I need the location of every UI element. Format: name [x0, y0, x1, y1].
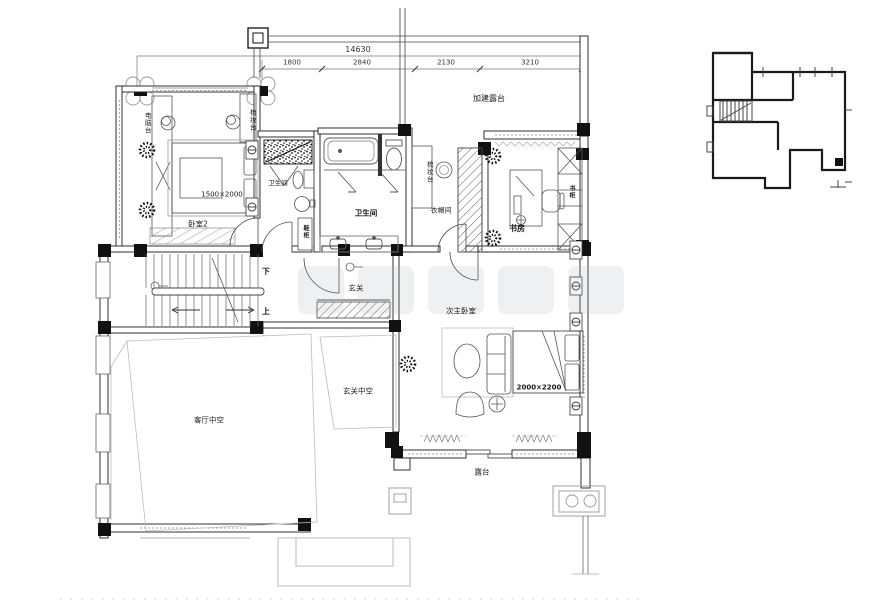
- dim-seg-1800: 1800: [283, 60, 301, 67]
- label-added-terrace: 加建露台: [473, 95, 505, 103]
- floorplan-page: 14630 1800 2840 2130 3210 加建露台 电脑台 梳妆台 1…: [0, 0, 878, 614]
- dim-total: 14630: [345, 46, 370, 54]
- label-dresser-closet: 梳妆台: [426, 161, 433, 184]
- label-study: 书房: [509, 225, 525, 233]
- label-bedroom2: 卧室2: [188, 220, 208, 228]
- label-bath-small: 卫生间: [268, 180, 288, 187]
- label-stairs-up: 上: [262, 308, 270, 316]
- label-living-void: 客厅中空: [194, 416, 224, 424]
- label-shoe-cabinet: 鞋柜: [302, 225, 308, 239]
- label-cloakroom: 衣帽间: [431, 208, 452, 215]
- label-foyer-void: 玄关中空: [343, 387, 373, 395]
- label-bath-main: 卫生间: [355, 209, 378, 217]
- label-bookcase: 书柜: [568, 185, 574, 199]
- label-terrace: 露台: [475, 468, 490, 476]
- label-second-master-bed: 2000×2200: [517, 385, 562, 392]
- dim-seg-2130: 2130: [437, 60, 455, 67]
- label-dresser-bedroom: 梳妆台: [249, 109, 256, 132]
- label-computer-desk: 电脑台: [144, 112, 151, 135]
- label-foyer: 玄关: [349, 284, 364, 292]
- label-stairs-down: 下: [262, 268, 270, 276]
- dim-seg-3210: 3210: [521, 60, 539, 67]
- label-bedroom2-bed: 1500×2000: [201, 192, 243, 199]
- dim-seg-2840: 2840: [353, 60, 371, 67]
- label-second-master: 次主卧室: [446, 307, 476, 315]
